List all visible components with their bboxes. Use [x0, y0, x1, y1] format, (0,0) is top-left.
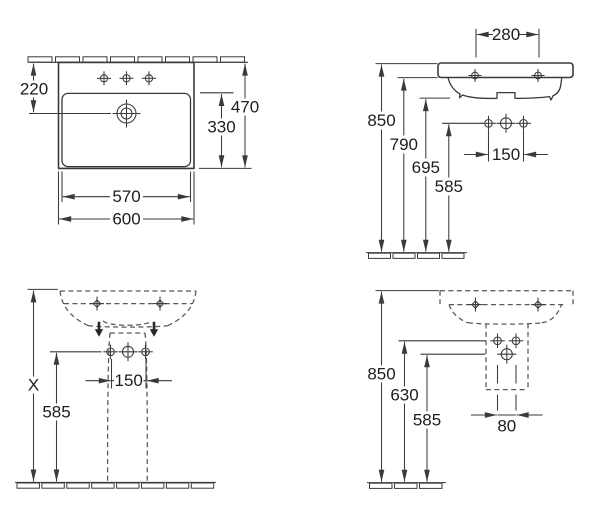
technical-drawing-page: 220 470 330 570 600: [0, 0, 600, 515]
dim-label-280: 280: [492, 25, 520, 44]
dim-label-585-side: 585: [435, 177, 463, 196]
tap-hole-symbols: [97, 71, 156, 85]
dim-label-600: 600: [112, 210, 140, 229]
deck-hole-symbols-side2: [469, 298, 546, 312]
drain-symbol: [113, 100, 141, 128]
dim-fixing-spacing-front: 150: [86, 359, 173, 390]
dim-label-150-front: 150: [115, 371, 143, 390]
dim-label-150-side: 150: [492, 145, 520, 164]
plan-view: 220 470 330 570 600: [20, 57, 259, 229]
fixing-hole-symbols: [481, 114, 531, 133]
pedestal-phantom-front: [108, 333, 148, 482]
dim-wall-to-drain: 220: [20, 64, 48, 113]
dim-label-570: 570: [112, 187, 140, 206]
dim-fixing-spacing-side: 150: [464, 131, 548, 164]
floor-hatch-front: [15, 482, 216, 488]
basin-phantom-front: [60, 291, 196, 327]
deck-hole-symbols-front: [90, 297, 167, 311]
basin-phantom-side: [440, 291, 573, 324]
dim-label-695: 695: [412, 158, 440, 177]
side-pedestal-view: 80 850 630 585: [367, 291, 573, 489]
washbasin-dimension-drawing: 220 470 330 570 600: [0, 0, 600, 515]
dim-fixing-height-side: 585: [435, 123, 483, 251]
deck-hole-symbols: [469, 69, 545, 82]
dim-height-x: X: [28, 289, 59, 481]
dim-label-585-front: 585: [42, 403, 70, 422]
dim-lower-fixing-height: 585: [413, 354, 486, 482]
dim-fixing-height-front: 585: [42, 352, 101, 482]
dim-label-x: X: [28, 376, 39, 395]
fixing-hole-symbols-side2: [490, 334, 523, 364]
dim-label-585-side2: 585: [413, 411, 441, 430]
mounting-arrow-icons: [95, 322, 158, 337]
floor-hatch-side: [366, 253, 467, 259]
fixing-hole-symbols-front: [103, 342, 153, 361]
basin-outline-side: [438, 63, 573, 100]
dim-label-850-side: 850: [367, 111, 395, 130]
dim-label-330: 330: [207, 118, 235, 137]
dim-overall-depth: 470: [231, 64, 259, 168]
outlet-extension-lines: [498, 365, 517, 411]
dim-label-850-side2: 850: [367, 365, 395, 384]
dim-label-80: 80: [497, 416, 516, 435]
wall-hatch: [28, 57, 248, 63]
dim-label-220: 220: [20, 80, 48, 99]
front-pedestal-view: X 585 150: [15, 289, 216, 488]
dim-bowl-underside-height: 695: [412, 98, 450, 252]
floor-hatch-side2: [367, 483, 446, 489]
side-view: 280 150 850 790 69: [366, 25, 573, 258]
dim-label-470: 470: [231, 98, 259, 117]
dim-tap-hole-spacing: 280: [476, 25, 539, 58]
dim-label-790: 790: [390, 135, 418, 154]
dim-bowl-width: 570: [62, 172, 191, 207]
dim-outlet-spacing: 80: [471, 415, 543, 435]
dim-label-630: 630: [390, 386, 418, 405]
